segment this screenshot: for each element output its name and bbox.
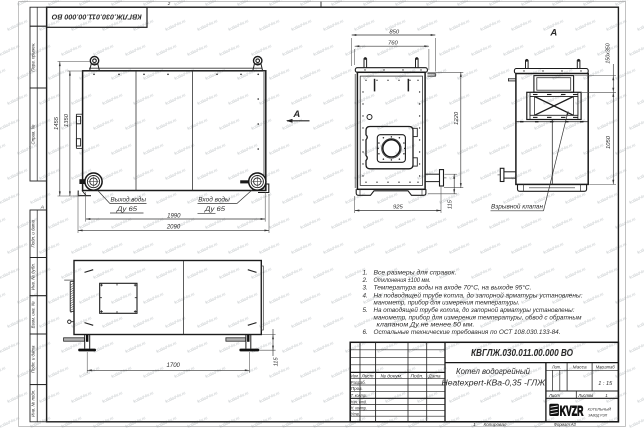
- svg-text:Утв.: Утв.: [351, 411, 360, 416]
- svg-text:6.: 6.: [363, 329, 368, 336]
- svg-text:Н. контр.: Н. контр.: [351, 406, 367, 411]
- svg-text:Перв. примен.: Перв. примен.: [31, 43, 36, 72]
- svg-text:Выход воды: Выход воды: [111, 196, 147, 203]
- svg-text:2.: 2.: [362, 277, 368, 284]
- svg-text:Ду 65: Ду 65: [116, 206, 138, 213]
- svg-text:Инв. № дубл.: Инв. № дубл.: [31, 263, 36, 290]
- svg-text:925: 925: [393, 205, 404, 211]
- svg-text:Ду 65: Ду 65: [204, 206, 226, 213]
- svg-text:манометр, прибор для измерения: манометр, прибор для измерения температу…: [374, 314, 583, 322]
- svg-text:Подп. и дата: Подп. и дата: [31, 219, 36, 247]
- svg-text:Т. контр.: Т. контр.: [351, 393, 367, 398]
- svg-text:КВГЛЖ.030.011.00.000 ВО: КВГЛЖ.030.011.00.000 ВО: [51, 13, 142, 20]
- svg-text:Формат А3: Формат А3: [554, 422, 576, 428]
- svg-text:850: 850: [389, 29, 400, 35]
- svg-text:ЗАВОД РЭП: ЗАВОД РЭП: [588, 412, 607, 417]
- svg-text:115: 115: [274, 357, 280, 367]
- svg-text:А: А: [549, 28, 557, 39]
- svg-text:№ докум.: № докум.: [381, 374, 403, 379]
- svg-text:Дата: Дата: [427, 374, 441, 379]
- svg-text:КОТЕЛЬНЫЙ: КОТЕЛЬНЫЙ: [588, 406, 612, 411]
- svg-text:На отводящей трубе котла, до з: На отводящей трубе котла, до запорной ар…: [374, 306, 575, 314]
- svg-text:Листов: Листов: [577, 393, 594, 398]
- svg-text:Остальные технические требован: Остальные технические требования по ОСТ …: [374, 328, 561, 336]
- svg-text:1990: 1990: [167, 213, 181, 219]
- svg-text:Лист: Лист: [360, 374, 373, 379]
- svg-text:2090: 2090: [166, 225, 181, 231]
- svg-text:Котел водогрейный: Котел водогрейный: [456, 367, 531, 376]
- svg-text:Взрывной клапан: Взрывной клапан: [491, 204, 544, 211]
- svg-text:Нач. отд.: Нач. отд.: [351, 399, 367, 404]
- svg-text:Масса: Масса: [573, 365, 588, 370]
- svg-text:1455: 1455: [54, 116, 60, 130]
- svg-text:Температура воды на входе 70°С: Температура воды на входе 70°С, на выход…: [374, 284, 532, 292]
- svg-text:1220: 1220: [454, 111, 460, 125]
- svg-text:1700: 1700: [167, 363, 181, 369]
- svg-text:3.: 3.: [363, 285, 368, 292]
- svg-text:Взам. инв. №: Взам. инв. №: [31, 301, 36, 328]
- svg-text:манометр, прибор для измерения: манометр, прибор для измерения температу…: [374, 299, 520, 307]
- svg-text:5.: 5.: [363, 307, 368, 314]
- svg-text:Отклонения ±100 мм.: Отклонения ±100 мм.: [374, 277, 431, 284]
- svg-text:Инв. № подл.: Инв. № подл.: [31, 390, 36, 417]
- svg-text:На подводящей трубе котла, до: На подводящей трубе котла, до запорной а…: [374, 291, 583, 299]
- svg-text:1.: 1.: [363, 270, 368, 277]
- svg-text:КВГЛЖ.030.011.00.000 ВО: КВГЛЖ.030.011.00.000 ВО: [471, 348, 573, 359]
- svg-text:Разраб.: Разраб.: [351, 380, 366, 385]
- svg-text:Пров.: Пров.: [351, 386, 363, 391]
- svg-text:Лист: Лист: [548, 393, 560, 398]
- svg-text:Справ. №: Справ. №: [31, 124, 36, 144]
- svg-text:KVZR: KVZR: [560, 403, 584, 418]
- svg-text:Масштаб: Масштаб: [596, 365, 615, 370]
- svg-text:760: 760: [388, 41, 399, 47]
- svg-text:1: 1: [473, 422, 476, 428]
- svg-text:Подп. и дата: Подп. и дата: [31, 345, 36, 373]
- svg-text:Копировал: Копировал: [484, 422, 507, 428]
- svg-text:2: 2: [167, 1, 171, 6]
- svg-text:клапаном Ду не менее 50 мм.: клапаном Ду не менее 50 мм.: [377, 322, 475, 329]
- svg-text:115: 115: [447, 199, 453, 209]
- svg-text:Лит.: Лит.: [551, 365, 561, 370]
- svg-text:Подп.: Подп.: [411, 374, 424, 379]
- svg-text:150х350: 150х350: [605, 43, 611, 63]
- svg-text:1050: 1050: [606, 135, 612, 149]
- svg-text:Изм.: Изм.: [351, 374, 359, 379]
- svg-text:Heatexpert-КВа-0,35 -ГЛЖ: Heatexpert-КВа-0,35 -ГЛЖ: [442, 378, 546, 387]
- svg-text:Вход воды: Вход воды: [198, 196, 230, 203]
- svg-text:А: А: [292, 109, 300, 120]
- svg-text:1 : 15: 1 : 15: [598, 381, 613, 387]
- svg-text:4.: 4.: [363, 292, 368, 299]
- svg-text:Все размеры для справок.: Все размеры для справок.: [374, 269, 457, 277]
- svg-text:1350: 1350: [64, 113, 70, 127]
